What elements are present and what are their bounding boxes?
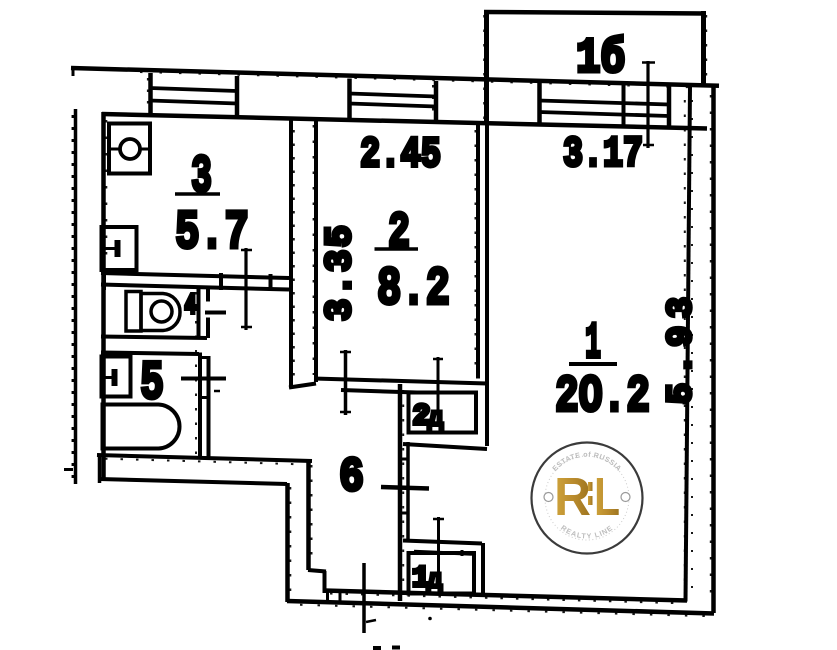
svg-text:4: 4	[185, 289, 197, 322]
svg-text:д: д	[427, 565, 443, 595]
svg-text:2.45: 2.45	[360, 130, 441, 179]
svg-text:R: R	[554, 467, 591, 527]
svg-text:3.35: 3.35	[320, 225, 362, 321]
svg-text:2: 2	[388, 205, 410, 262]
svg-text:5.93: 5.93	[662, 297, 702, 404]
svg-text:5.7: 5.7	[175, 202, 249, 265]
svg-text:3: 3	[191, 147, 212, 207]
svg-text:8.2: 8.2	[377, 260, 450, 321]
svg-text:L: L	[594, 467, 620, 527]
svg-text:3.17: 3.17	[563, 130, 643, 179]
svg-text:6: 6	[339, 451, 364, 505]
svg-text:2O.2: 2O.2	[555, 368, 650, 427]
svg-text:д: д	[428, 403, 444, 433]
svg-text:1б: 1б	[576, 31, 625, 87]
